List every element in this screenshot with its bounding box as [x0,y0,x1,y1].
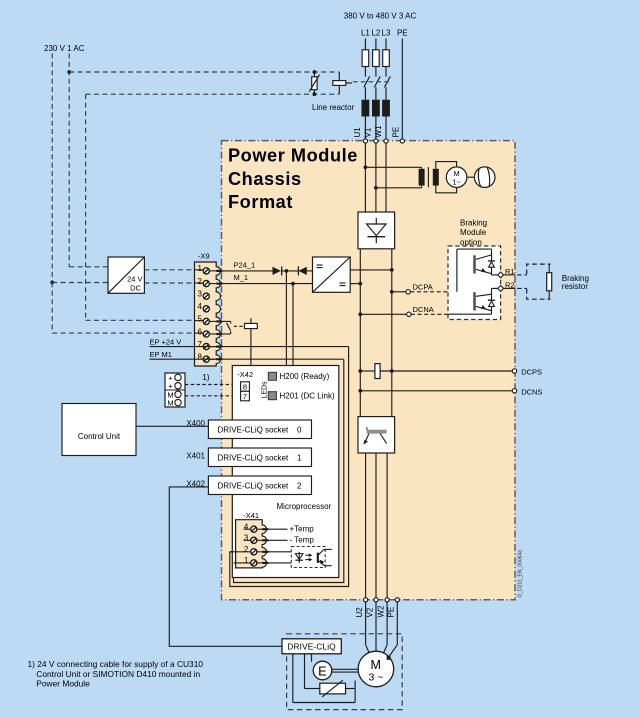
svg-text:1): 1) [202,373,209,382]
svg-text:V2: V2 [365,607,374,617]
svg-text:LEDs: LEDs [262,381,269,399]
svg-text:PE: PE [387,607,396,618]
svg-text:DCPA: DCPA [413,283,433,292]
svg-text:3 ~: 3 ~ [369,672,384,684]
svg-text:DRIVE-CLiQ: DRIVE-CLiQ [287,643,335,652]
svg-text:Chassis: Chassis [228,169,302,189]
svg-text:L1: L1 [361,29,370,38]
svg-text:G_D211_EN_00064a: G_D211_EN_00064a [518,550,524,598]
svg-text:Braking: Braking [460,219,487,228]
svg-text:DC: DC [130,284,141,293]
svg-text:2: 2 [198,277,203,286]
svg-text:M_1: M_1 [234,273,249,282]
svg-text:1) 24 V connecting cable for s: 1) 24 V connecting cable for supply of a… [28,659,204,669]
svg-text:-X9: -X9 [198,251,210,260]
svg-text:Line reactor: Line reactor [312,103,355,112]
svg-text:M: M [167,399,173,408]
svg-text:H201 (DC Link): H201 (DC Link) [280,392,335,401]
svg-text:2: 2 [244,545,249,554]
svg-text:2: 2 [297,481,302,490]
svg-text:EP M1: EP M1 [150,350,172,359]
svg-text:DCNS: DCNS [521,387,542,396]
svg-text:-X41: -X41 [243,511,259,520]
svg-text:DCNA: DCNA [413,305,434,314]
svg-text:3: 3 [198,290,203,299]
svg-text:resistor: resistor [562,282,589,291]
svg-text:L3: L3 [382,29,391,38]
svg-text:PE: PE [391,127,400,138]
svg-text:8: 8 [243,383,247,392]
svg-text:-X42: -X42 [237,370,253,379]
svg-text:M: M [370,658,380,672]
svg-text:380 V to 480 V 3 AC: 380 V to 480 V 3 AC [344,12,417,21]
svg-text:L2: L2 [371,29,380,38]
svg-text:7: 7 [198,340,203,349]
svg-text:8: 8 [198,353,203,362]
svg-text:DRIVE-CLiQ socket: DRIVE-CLiQ socket [218,481,289,490]
svg-text:230 V 1 AC: 230 V 1 AC [44,44,85,53]
svg-text:U1: U1 [353,127,362,138]
svg-text:Power Module: Power Module [36,679,90,689]
svg-text:6: 6 [198,327,203,336]
svg-text:P24_1: P24_1 [234,260,256,269]
svg-text:DRIVE-CLiQ socket: DRIVE-CLiQ socket [218,453,289,462]
svg-text:1~: 1~ [452,177,461,186]
svg-text:W1: W1 [374,125,383,138]
svg-text:+Temp: +Temp [290,525,315,534]
svg-text:24 V: 24 V [127,275,142,284]
svg-text:Module: Module [460,228,487,237]
svg-text:5: 5 [198,315,203,324]
svg-text:0: 0 [297,425,302,434]
svg-text:1: 1 [198,264,203,273]
svg-text:1: 1 [244,556,249,565]
svg-text:W2: W2 [376,605,385,618]
svg-text:V1: V1 [364,127,373,137]
svg-text:DCPS: DCPS [521,368,542,377]
svg-text:Power Module: Power Module [228,146,358,166]
svg-text:Control Unit: Control Unit [78,432,121,441]
svg-text:- Temp: - Temp [290,536,315,545]
svg-text:E: E [318,663,327,678]
svg-text:U2: U2 [355,607,364,618]
svg-text:3: 3 [244,534,249,543]
svg-text:DRIVE-CLiQ socket: DRIVE-CLiQ socket [218,425,289,434]
svg-text:H200 (Ready): H200 (Ready) [280,372,330,381]
svg-text:EP +24 V: EP +24 V [150,338,182,347]
svg-text:4: 4 [244,523,249,532]
svg-text:1: 1 [297,453,302,462]
svg-text:Format: Format [228,192,293,212]
svg-text:4: 4 [198,302,203,311]
svg-text:PE: PE [397,29,408,38]
svg-text:Control Unit or SIMOTION D410: Control Unit or SIMOTION D410 mounted in [36,669,200,679]
svg-text:X401: X401 [186,452,205,461]
svg-text:Microprocessor: Microprocessor [277,502,332,511]
svg-text:7: 7 [243,392,247,401]
